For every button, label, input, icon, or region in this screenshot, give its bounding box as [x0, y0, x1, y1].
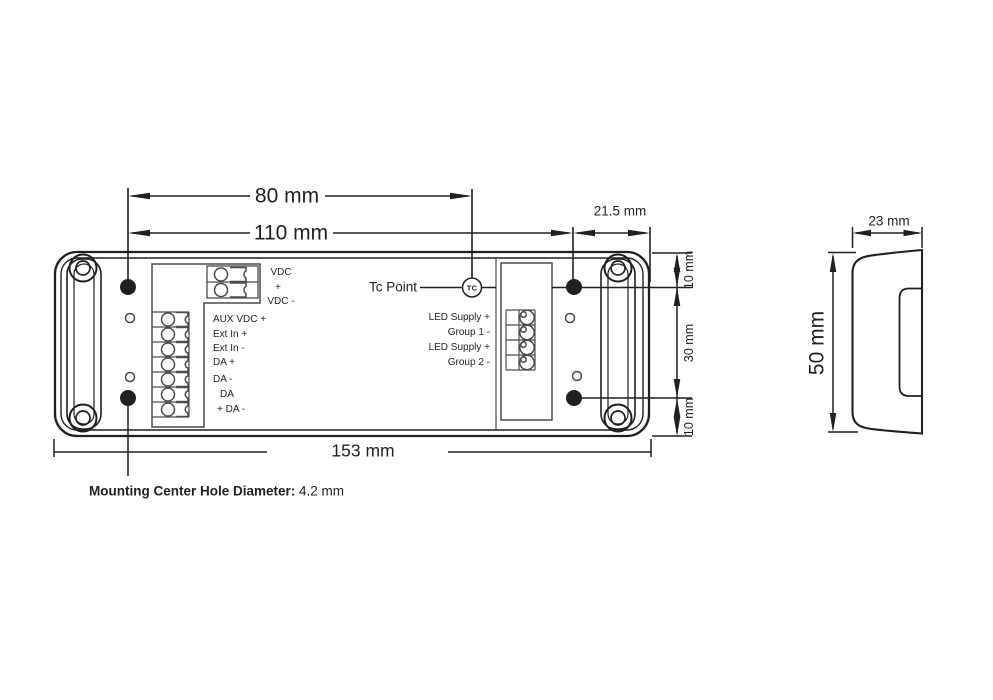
tc-point-label: Tc Point [340, 280, 417, 294]
right-terminal-block [496, 259, 552, 429]
arrowheads-top [128, 193, 650, 237]
linework [0, 0, 993, 700]
tc-point-marker [420, 278, 692, 297]
mounting-hole-note: Mounting Center Hole Diameter: 4.2 mm [89, 484, 344, 498]
dim-50mm-label: 50 mm [807, 310, 828, 374]
dim-80mm-label: 80 mm [255, 186, 319, 207]
terminal-label-da-plus: DA + [213, 358, 235, 368]
terminal-label-aux-vdc: AUX VDC + [213, 315, 266, 325]
dim-30mm-label: 30 mm [683, 323, 696, 361]
terminal-label-vdc: VDC [270, 268, 291, 278]
mounting-hole-note-title: Mounting Center Hole Diameter: [89, 483, 295, 498]
dimension-lines-top [128, 188, 650, 285]
terminal-label-ext-in-plus: Ext In + [213, 330, 247, 340]
dim-110mm-label: 110 mm [254, 223, 328, 244]
terminal-label-group-2: Group 2 - [380, 358, 490, 368]
dim-10mm-bottom-label: 10 mm [683, 398, 696, 436]
left-mount-channel [67, 255, 101, 432]
terminal-label-plus-da-minus: + DA - [217, 405, 245, 415]
dim-153mm-label: 153 mm [331, 442, 394, 460]
dimension-drawing: 80 mm 110 mm 21.5 mm 153 mm Tc Point TC … [0, 0, 993, 700]
dim-21-5mm-label: 21.5 mm [594, 204, 647, 218]
terminal-label-da: DA [220, 390, 234, 400]
terminal-label-led-supply-1: LED Supply + [380, 313, 490, 323]
terminal-label-led-supply-2: LED Supply + [380, 343, 490, 353]
dim-10mm-top-label: 10 mm [683, 251, 696, 289]
terminal-label-vdc-plus: + [275, 283, 281, 293]
terminal-label-da-minus: DA - [213, 375, 232, 385]
side-view [828, 227, 922, 434]
tc-symbol-label: TC [467, 284, 477, 292]
dim-23mm-label: 23 mm [868, 214, 909, 228]
mounting-hole-note-value: 4.2 mm [295, 483, 344, 498]
arrowheads-side [830, 230, 922, 432]
terminal-label-group-1: Group 1 - [380, 328, 490, 338]
terminal-label-vdc-minus: VDC - [267, 297, 294, 307]
right-mount-channel [601, 255, 635, 432]
terminal-label-ext-in-minus: Ext In - [213, 344, 245, 354]
